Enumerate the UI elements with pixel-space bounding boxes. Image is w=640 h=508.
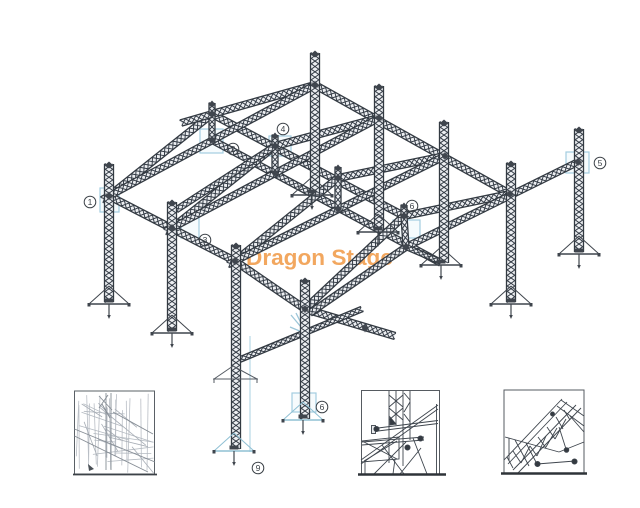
svg-text:9: 9 bbox=[256, 463, 261, 473]
svg-text:6: 6 bbox=[410, 201, 415, 211]
svg-text:4: 4 bbox=[281, 124, 286, 134]
svg-text:5: 5 bbox=[598, 158, 603, 168]
svg-text:3: 3 bbox=[203, 235, 208, 245]
svg-text:1: 1 bbox=[88, 197, 93, 207]
svg-text:2: 2 bbox=[231, 144, 236, 154]
svg-text:6: 6 bbox=[320, 402, 325, 412]
